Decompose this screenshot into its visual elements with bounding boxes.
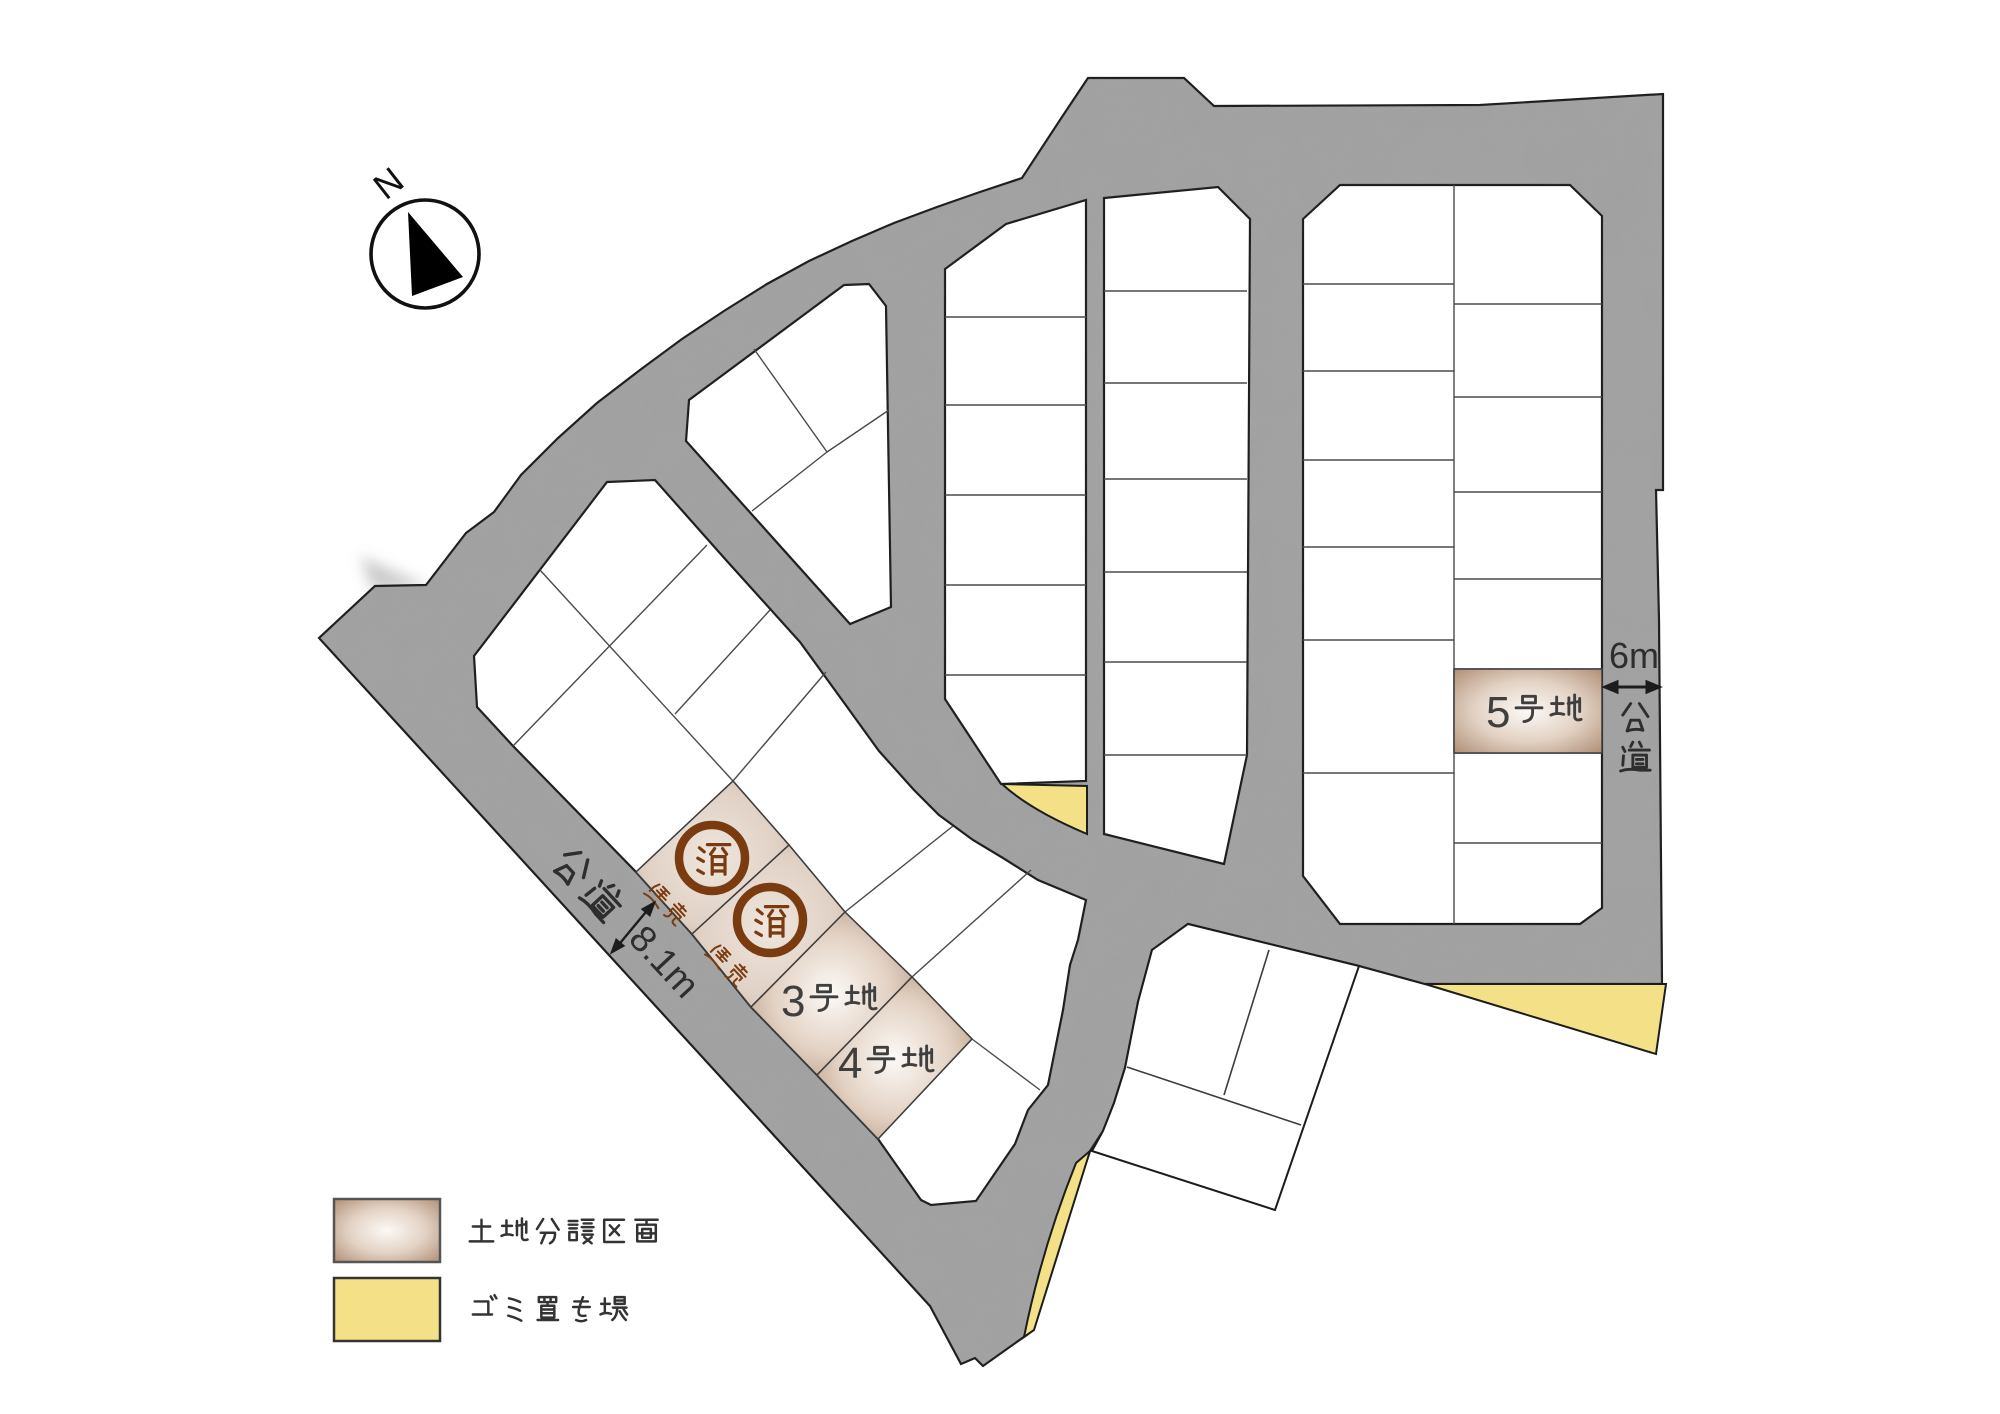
svg-text:5: 5	[1486, 688, 1510, 737]
svg-text:6m: 6m	[1609, 635, 1659, 676]
svg-text:4: 4	[838, 1039, 862, 1088]
svg-text:3: 3	[781, 977, 805, 1026]
